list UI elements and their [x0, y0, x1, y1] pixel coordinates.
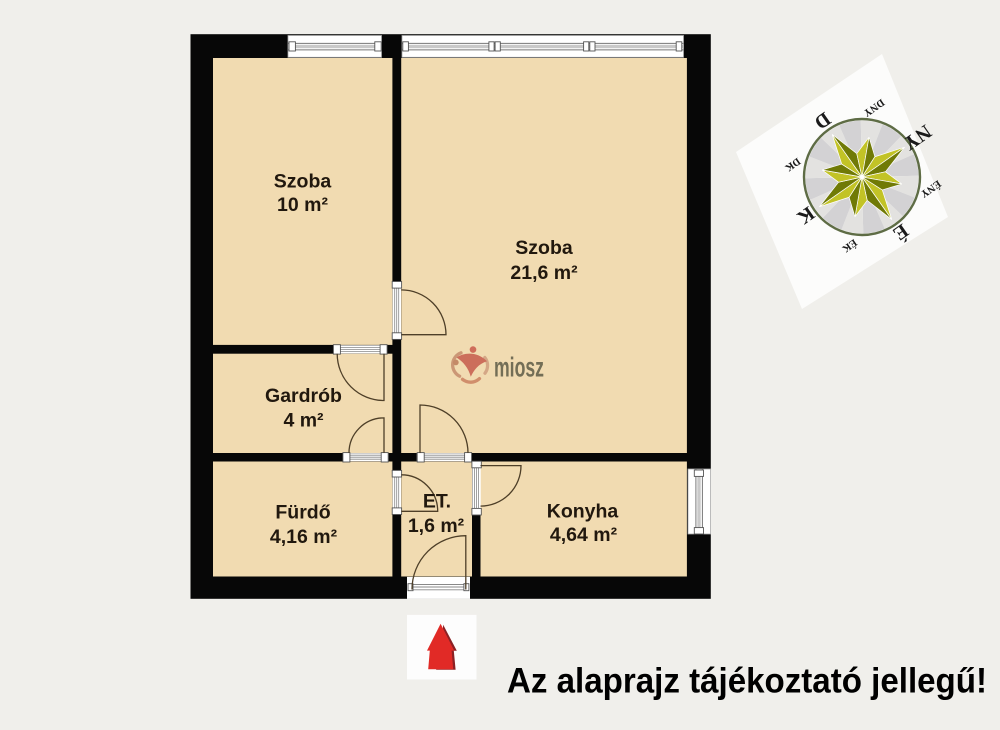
svg-text:4,64 m²: 4,64 m² [550, 524, 618, 546]
svg-text:Az alaprajz tájékoztató jelleg: Az alaprajz tájékoztató jellegű! [507, 662, 987, 701]
svg-text:21,6 m²: 21,6 m² [510, 262, 578, 284]
svg-text:Szoba: Szoba [274, 171, 332, 193]
svg-text:Szoba: Szoba [515, 237, 573, 259]
svg-text:miosz: miosz [494, 352, 544, 383]
svg-text:4,16 m²: 4,16 m² [270, 526, 338, 548]
svg-text:1,6 m²: 1,6 m² [408, 515, 465, 537]
svg-text:10 m²: 10 m² [277, 194, 328, 216]
svg-text:Gardrób: Gardrób [265, 385, 342, 407]
svg-text:Konyha: Konyha [547, 501, 619, 523]
svg-text:4 m²: 4 m² [283, 410, 324, 432]
svg-text:Fürdő: Fürdő [275, 502, 330, 524]
svg-text:ET.: ET. [423, 491, 451, 513]
